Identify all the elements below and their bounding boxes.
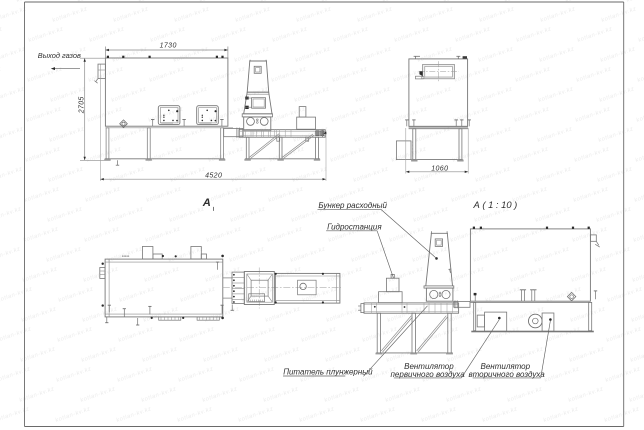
svg-text:1060: 1060 (431, 165, 448, 172)
svg-text:Гидростанция: Гидростанция (327, 223, 382, 232)
svg-text:Бункер расходный: Бункер расходный (318, 201, 387, 210)
svg-text:Выход газов: Выход газов (38, 51, 81, 60)
svg-text:4520: 4520 (205, 173, 222, 180)
svg-text:первичного воздуха: первичного воздуха (391, 370, 466, 379)
svg-text:А: А (202, 197, 211, 209)
svg-text:Питатель плунжерный: Питатель плунжерный (283, 368, 373, 377)
svg-text:вторичного воздуха: вторичного воздуха (468, 370, 545, 379)
svg-text:1730: 1730 (160, 43, 177, 50)
svg-text:2705: 2705 (79, 96, 86, 114)
svg-text:А ( 1 : 10 ): А ( 1 : 10 ) (473, 199, 518, 210)
